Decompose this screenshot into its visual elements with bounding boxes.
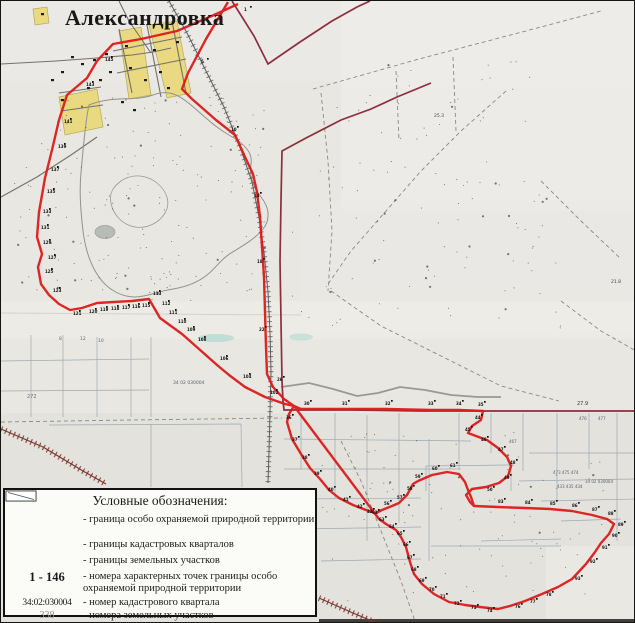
tree-dot (246, 236, 247, 237)
tree-dot (333, 167, 334, 168)
boundary-point-number: 69 (419, 578, 425, 583)
tree-dot (14, 183, 15, 184)
tree-dot (255, 128, 256, 129)
tree-dot (99, 277, 100, 278)
tree-dot (151, 279, 152, 280)
tree-dot (332, 325, 333, 326)
boundary-point-mark (421, 473, 423, 475)
tree-dot (603, 490, 604, 491)
tree-dot (381, 132, 382, 133)
tree-dot (409, 286, 410, 287)
tree-dot (76, 158, 77, 159)
boundary-point-number: 26 (277, 377, 283, 382)
tree-dot (408, 504, 410, 506)
boundary-point-number: 66 (403, 542, 409, 547)
tree-dot (437, 474, 438, 475)
legend-item-protected-boundary: - граница особо охраняемой природной тер… (11, 514, 315, 526)
tree-dot (364, 437, 365, 438)
tree-dot (370, 95, 371, 96)
tree-dot (349, 452, 350, 453)
tree-dot (579, 533, 580, 534)
tree-dot (457, 98, 458, 99)
boundary-point-mark (493, 607, 495, 609)
forest-outline (80, 93, 268, 297)
tree-dot (372, 483, 373, 484)
boundary-point-number: 38 (302, 455, 308, 460)
tree-dot (112, 208, 113, 209)
boundary-point-number: 60 (432, 466, 438, 471)
boundary-point-mark (409, 541, 411, 543)
boundary-point-mark (204, 336, 206, 338)
tree-dot (28, 276, 29, 277)
boundary-point-number: 46 (481, 437, 487, 442)
tree-dot (133, 205, 135, 207)
tree-dot (542, 225, 543, 226)
tree-dot (507, 454, 509, 456)
tree-dot (490, 78, 491, 79)
tree-dot (556, 312, 557, 313)
boundary-point-mark (434, 400, 436, 402)
boundary-point-mark (614, 510, 616, 512)
tree-dot (348, 516, 349, 517)
tree-dot (106, 199, 107, 200)
tree-dot (47, 214, 49, 216)
tree-dot (384, 213, 386, 215)
tree-dot (536, 543, 537, 544)
boundary-point-mark (403, 530, 405, 532)
tree-dot (47, 149, 48, 150)
boundary-point-number: 125 (45, 269, 54, 274)
tree-dot (445, 555, 446, 556)
boundary-point-mark (403, 494, 405, 496)
tree-dot (398, 103, 399, 104)
building-mark (176, 41, 179, 43)
tree-dot (144, 108, 145, 109)
tree-dot (122, 157, 123, 158)
boundary-point-mark (504, 498, 506, 500)
building-mark (61, 99, 64, 101)
tree-dot (431, 492, 432, 493)
boundary-point-mark (413, 485, 415, 487)
tree-dot (326, 511, 327, 512)
tree-dot (482, 79, 483, 80)
boundary-point-number: 118 (111, 306, 120, 311)
boundary-point-mark (425, 577, 427, 579)
boundary-point-mark (395, 523, 397, 525)
boundary-point-number: 90 (612, 533, 618, 538)
tree-dot (426, 266, 428, 268)
tree-dot (57, 121, 58, 122)
tree-dot (514, 287, 515, 288)
boundary-point-mark (598, 506, 600, 508)
boundary-point-number: 42 (357, 504, 363, 509)
tree-dot (495, 182, 497, 184)
legend-item-label: - номера характерных точек границы особо… (83, 571, 308, 595)
tree-dot (466, 586, 467, 587)
boundary-point-number: 77 (530, 599, 536, 604)
boundary-point-mark (226, 355, 228, 357)
boundary-point-number: 37 (292, 437, 298, 442)
tree-dot (319, 215, 320, 216)
boundary-point-mark (484, 401, 486, 403)
map-text-label: 272 (27, 394, 37, 400)
map-text-label: 10 (98, 338, 104, 344)
tree-dot (432, 557, 433, 558)
tree-dot (195, 276, 196, 277)
tree-dot (560, 327, 561, 328)
boundary-point-mark (184, 318, 186, 320)
tree-dot (517, 227, 518, 228)
boundary-point-mark (320, 470, 322, 472)
tree-dot (140, 247, 141, 248)
tree-dot (367, 451, 368, 452)
building-mark (93, 59, 96, 61)
boundary-point-mark (435, 586, 437, 588)
tree-dot (20, 230, 21, 231)
tree-dot (348, 120, 349, 121)
building-mark (153, 49, 156, 51)
tree-dot (342, 187, 343, 188)
tree-dot (397, 308, 398, 309)
tree-dot (26, 167, 27, 168)
tree-dot (387, 64, 389, 66)
boundary-point-number: 139 (58, 144, 67, 149)
scan-edge-strip (319, 619, 635, 623)
boundary-point-number: 78 (546, 592, 552, 597)
boundary-point-number: 85 (550, 501, 556, 506)
tree-dot (105, 118, 106, 119)
tree-dot (249, 289, 250, 290)
tree-dot (577, 554, 578, 555)
tree-dot (74, 279, 76, 281)
tree-dot (66, 115, 67, 116)
tree-dot (513, 432, 514, 433)
legend-item-label: - граница особо охраняемой природной тер… (83, 514, 314, 526)
building-mark (41, 13, 44, 15)
tree-dot (444, 184, 445, 185)
boundary-point-mark (417, 566, 419, 568)
tree-dot (529, 77, 530, 78)
tree-dot (67, 188, 68, 189)
tree-dot (502, 535, 503, 536)
tree-dot (249, 144, 250, 145)
boundary-point-number: 65 (397, 531, 403, 536)
tree-dot (253, 114, 254, 115)
tree-dot (524, 181, 525, 182)
tree-dot (17, 244, 19, 246)
map-text-label: 12 (80, 336, 86, 342)
tree-dot (55, 207, 56, 208)
tree-dot (413, 592, 414, 593)
boundary-point-number: 86 (572, 503, 578, 508)
tree-dot (599, 462, 600, 463)
tree-dot (531, 270, 532, 271)
tree-dot (530, 516, 531, 517)
tree-dot (457, 219, 458, 220)
building-mark (125, 45, 128, 47)
tree-dot (502, 565, 503, 566)
tree-dot (560, 549, 561, 550)
tree-dot (358, 110, 359, 111)
tree-dot (507, 253, 509, 255)
tree-dot (41, 143, 42, 144)
tree-dot (200, 285, 201, 286)
tree-dot (398, 543, 399, 544)
tree-dot (140, 145, 142, 147)
boundary-point-number: 32 (385, 401, 391, 406)
tree-dot (556, 543, 557, 544)
tree-dot (197, 174, 198, 175)
tree-dot (387, 172, 388, 173)
boundary-point-number: 127 (48, 255, 57, 260)
tree-dot (409, 85, 410, 86)
tree-dot (240, 220, 241, 221)
tree-dot (498, 538, 499, 539)
tree-dot (512, 89, 513, 90)
boundary-point-number: 64 (389, 524, 395, 529)
tree-dot (60, 130, 61, 131)
boundary-point-number: 35 (478, 402, 484, 407)
tree-dot (479, 549, 480, 550)
tree-dot (89, 192, 90, 193)
boundary-point-mark (413, 554, 415, 556)
boundary-point-mark (95, 308, 97, 310)
tree-dot (370, 488, 371, 489)
tree-dot (178, 225, 179, 226)
tree-dot (444, 246, 445, 247)
legend-item-cadastral-quarters: - границы кадастровых кварталов (11, 539, 315, 551)
tree-dot (262, 273, 263, 274)
boundary-point-number: 10 (231, 127, 237, 132)
tree-dot (36, 289, 37, 290)
boundary-point-mark (128, 304, 130, 306)
tree-dot (85, 127, 86, 128)
building-mark (99, 79, 102, 81)
tree-dot (498, 318, 499, 319)
boundary-point-mark (552, 591, 554, 593)
boundary-point-number: 50 (487, 487, 493, 492)
tree-dot (533, 590, 534, 591)
boundary-point-mark (237, 126, 239, 128)
pond (95, 226, 115, 239)
boundary-point-mark (59, 287, 61, 289)
boundary-point-mark (516, 459, 518, 461)
boundary-point-number: 111 (169, 310, 178, 315)
tree-dot (473, 591, 474, 592)
boundary-point-mark (460, 600, 462, 602)
tree-dot (405, 167, 406, 168)
tree-dot (347, 600, 348, 601)
tree-dot (99, 260, 100, 261)
building-mark (133, 109, 136, 111)
tree-dot (264, 221, 265, 222)
boundary-point-mark (310, 400, 312, 402)
tree-dot (247, 290, 248, 291)
tree-dot (472, 198, 473, 199)
tree-dot (555, 262, 556, 263)
boundary-point-number: 45 (465, 427, 471, 432)
boundary-point-number: 106 (220, 356, 229, 361)
tree-dot (218, 111, 219, 112)
map-text-label: 8 (59, 336, 62, 342)
tree-dot (21, 281, 23, 283)
tree-dot (159, 197, 160, 198)
boundary-point-mark (64, 143, 66, 145)
boundary-point-mark (265, 326, 267, 328)
map-page: 1451431411391371351331311291271251231211… (0, 0, 635, 623)
tree-dot (81, 167, 82, 168)
tree-dot (451, 106, 453, 108)
tree-dot (149, 292, 150, 293)
boundary-point-number: 36 (286, 415, 292, 420)
tree-dot (178, 279, 179, 280)
tree-dot (359, 163, 360, 164)
tree-dot (20, 217, 21, 218)
boundary-point-mark (260, 192, 262, 194)
boundary-point-mark (504, 446, 506, 448)
legend-item-label: - границы кадастровых кварталов (83, 539, 234, 551)
boundary-point-number: 141 (64, 119, 73, 124)
building-mark (87, 87, 90, 89)
tree-dot (383, 483, 384, 484)
tree-dot (197, 185, 198, 186)
tree-dot (463, 185, 464, 186)
tree-dot (169, 285, 170, 286)
tree-dot (450, 315, 451, 316)
boundary-point-number: 121 (73, 311, 82, 316)
boundary-point-mark (349, 496, 351, 498)
tree-dot (206, 199, 207, 200)
tree-dot (518, 456, 519, 457)
tree-dot (400, 138, 401, 139)
building-mark (81, 63, 84, 65)
tree-dot (236, 264, 237, 265)
tree-dot (336, 322, 337, 323)
tree-dot (263, 110, 264, 111)
boundary-point-mark (175, 309, 177, 311)
tree-dot (320, 170, 321, 171)
tree-dot (403, 512, 404, 513)
tree-dot (328, 178, 329, 179)
boundary-point-mark (57, 166, 59, 168)
tree-dot (355, 468, 356, 469)
tree-dot (256, 175, 257, 176)
boundary-point-mark (493, 486, 495, 488)
boundary-point-number: 67 (407, 555, 413, 560)
boundary-point-number: 5 (201, 59, 204, 64)
point-number-range: 1 - 146 (11, 571, 83, 583)
tree-dot (499, 184, 500, 185)
tree-dot (106, 237, 107, 238)
boundary-point-mark (117, 305, 119, 307)
tree-dot (74, 263, 75, 264)
tree-dot (421, 208, 422, 209)
boundary-point-number: 112 (162, 301, 171, 306)
tree-dot (482, 215, 484, 217)
boundary-point-mark (53, 188, 55, 190)
boundary-point-number: 113 (153, 291, 162, 296)
tree-dot (180, 135, 181, 136)
tree-dot (128, 267, 129, 268)
boundary-point-number: 70 (429, 587, 435, 592)
tree-dot (489, 500, 490, 501)
boundary-point-number: 34 (456, 401, 462, 406)
tree-dot (128, 197, 130, 199)
field-road (281, 383, 501, 397)
tree-dot (258, 154, 259, 155)
tree-dot (373, 170, 374, 171)
building-mark (144, 79, 147, 81)
tree-dot (206, 253, 207, 254)
tree-dot (416, 440, 417, 441)
boundary-point-number: 58 (407, 486, 413, 491)
tree-dot (456, 179, 457, 180)
tree-dot (109, 196, 110, 197)
legend-box: Условные обозначения: - граница особо ох… (3, 488, 317, 617)
tree-dot (131, 166, 132, 167)
tree-dot (510, 62, 511, 63)
tree-dot (260, 147, 261, 148)
tree-dot (410, 70, 411, 71)
legend-item-parcel-numbers: 338 - номера земельных участков (11, 610, 315, 622)
tree-dot (525, 229, 526, 230)
boundary-point-number: 116 (132, 304, 141, 309)
tree-dot (102, 289, 103, 290)
boundary-point-number: 104 (243, 374, 252, 379)
tree-dot (308, 317, 309, 318)
boundary-point-mark (148, 302, 150, 304)
boundary-point-number: 73 (471, 605, 477, 610)
tree-dot (155, 140, 156, 141)
tree-dot (127, 173, 128, 174)
map-text-label: 21.8 (611, 279, 621, 285)
tree-dot (167, 287, 168, 288)
boundary-point-number: 18 (257, 259, 263, 264)
tree-dot (222, 251, 223, 252)
boundary-point-number: 83 (498, 499, 504, 504)
boundary-point-mark (556, 500, 558, 502)
tree-dot (538, 237, 539, 238)
tree-dot (260, 214, 261, 215)
boundary-point-mark (51, 268, 53, 270)
tree-dot (223, 98, 224, 99)
tree-dot (505, 435, 506, 436)
tree-dot (404, 522, 405, 523)
tree-dot (142, 229, 143, 230)
tree-dot (486, 161, 487, 162)
boundary-point-mark (106, 306, 108, 308)
tree-dot (383, 240, 384, 241)
tree-dot (373, 262, 374, 263)
map-text-label: 473 475 474 (553, 470, 579, 475)
tree-dot (209, 97, 210, 98)
tree-dot (112, 203, 113, 204)
tree-dot (456, 251, 457, 252)
boundary-point-mark (618, 532, 620, 534)
tree-dot (565, 567, 566, 568)
tree-dot (425, 277, 427, 279)
tree-dot (542, 556, 543, 557)
tree-dot (163, 273, 164, 274)
tree-dot (546, 198, 548, 200)
boundary-point-number: 102 (270, 390, 279, 395)
boundary-point-mark (92, 81, 94, 83)
boundary-point-number: 1 (244, 7, 247, 12)
tree-dot (251, 273, 252, 274)
tree-dot (374, 260, 376, 262)
tree-dot (170, 274, 171, 275)
legend-item-quarter-number: 34:02:030004 - номер кадастрового кварта… (11, 597, 315, 609)
